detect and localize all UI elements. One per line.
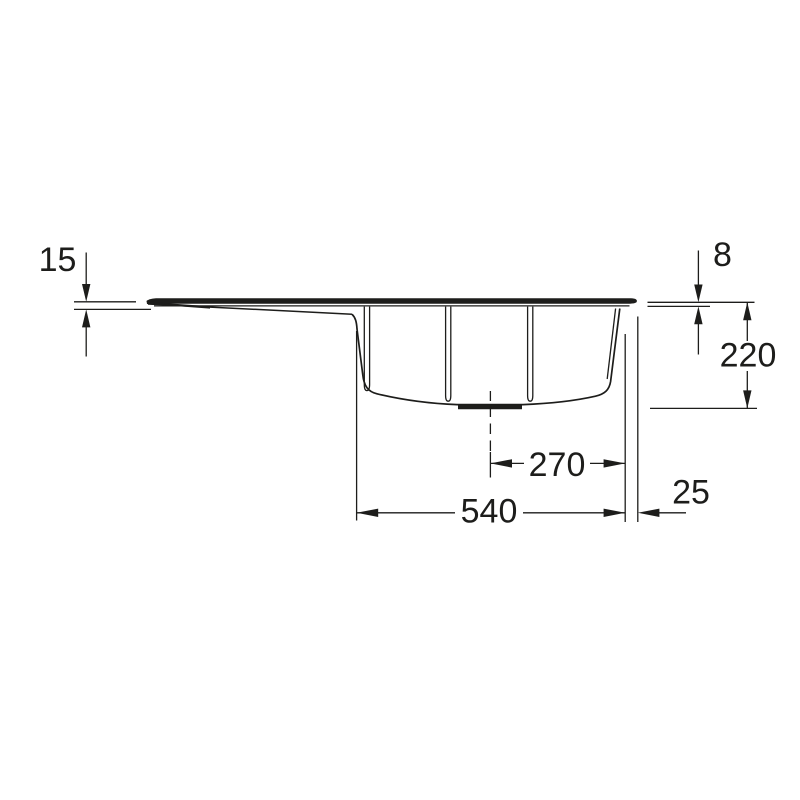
bowl-contour-line-3 [528,307,533,402]
dim-label-rim-thickness: 8 [713,236,732,274]
rim-top-surface [146,298,637,304]
arrowhead-right-icon [604,459,626,467]
dim-label-right-overhang: 25 [672,474,710,512]
dim-label-bowl-width: 540 [461,493,518,531]
bowl-contour-line-2 [446,307,451,402]
technical-drawing-page: 15 8 220 270 540 25 [0,0,800,800]
arrowhead-down-icon [694,285,702,303]
sink-section-drawing: 15 8 220 270 540 25 [0,0,800,800]
dim-label-left-edge-height: 15 [39,241,77,279]
arrowhead-up-icon [743,302,751,320]
dimension-labels: 15 8 220 270 540 25 [39,236,777,531]
arrowhead-right-icon [604,509,626,517]
bowl-contour-line-1 [364,307,369,391]
dimension-lines [74,251,757,523]
dim-label-bowl-depth: 220 [720,337,777,375]
arrowhead-left-icon [638,509,660,517]
arrowhead-up-icon [694,306,702,324]
arrowhead-down-icon [82,284,90,302]
dimension-left-edge-height [74,253,151,357]
arrowhead-up-icon [82,309,90,327]
sink-profile [146,298,637,407]
arrowhead-down-icon [743,390,751,408]
arrowhead-left-icon [490,459,512,467]
arrowhead-left-icon [357,509,379,517]
dim-label-center-to-edge: 270 [529,446,586,484]
bowl-outline [352,309,620,405]
